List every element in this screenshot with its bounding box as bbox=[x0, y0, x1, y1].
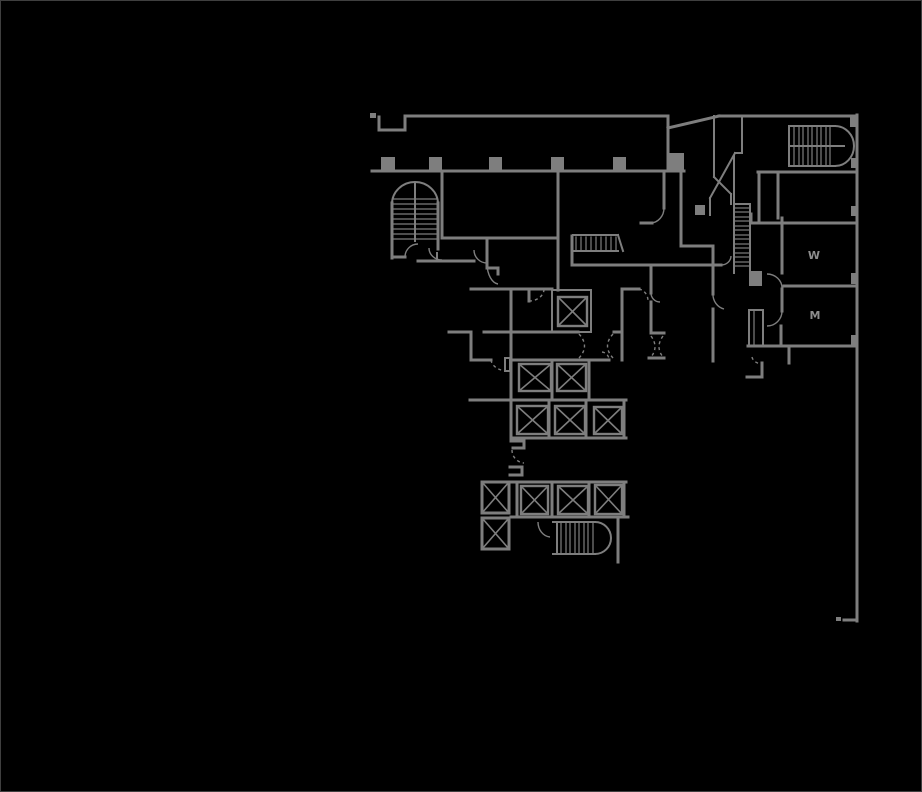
column-fill bbox=[429, 157, 442, 171]
floor-plan-screen: WM bbox=[0, 0, 922, 792]
door-swing-dashed bbox=[639, 289, 648, 301]
column-fill bbox=[851, 206, 858, 216]
door-swing-dashed bbox=[512, 450, 524, 463]
column-fill bbox=[668, 153, 684, 171]
column-fill bbox=[695, 205, 705, 215]
door-swing-dashed bbox=[529, 289, 544, 301]
door-swing bbox=[767, 311, 782, 326]
column-fill bbox=[851, 335, 858, 346]
door-swing-dashed bbox=[579, 334, 585, 358]
door-swing bbox=[651, 208, 664, 223]
shaft-outline bbox=[505, 358, 510, 371]
shaft-outline bbox=[749, 310, 763, 346]
door-swing bbox=[538, 522, 550, 537]
wall-segment bbox=[668, 116, 719, 128]
door-swing-dashed bbox=[651, 336, 655, 357]
door-swing-dashed bbox=[602, 352, 609, 359]
room-label: W bbox=[808, 249, 820, 262]
column-fill bbox=[851, 273, 858, 284]
column-fill bbox=[836, 617, 841, 621]
column-fill bbox=[850, 115, 858, 127]
door-swing bbox=[767, 274, 782, 288]
door-swing-dashed bbox=[608, 334, 614, 358]
column-fill bbox=[851, 158, 858, 168]
door-swing bbox=[405, 244, 418, 257]
partition-wall bbox=[618, 235, 623, 251]
column-fill bbox=[370, 113, 376, 118]
column-fill bbox=[613, 157, 626, 171]
door-swing bbox=[713, 294, 724, 309]
column-fill bbox=[551, 157, 564, 171]
door-swing bbox=[429, 248, 442, 260]
stair-arc bbox=[595, 522, 611, 554]
door-swing-dashed bbox=[659, 336, 663, 357]
floor-plan-canvas: WM bbox=[1, 1, 922, 792]
door-swing bbox=[474, 250, 487, 263]
column-fill bbox=[381, 157, 395, 171]
column-fill bbox=[489, 157, 502, 171]
room-label: M bbox=[810, 309, 821, 322]
column-fill bbox=[749, 271, 762, 286]
